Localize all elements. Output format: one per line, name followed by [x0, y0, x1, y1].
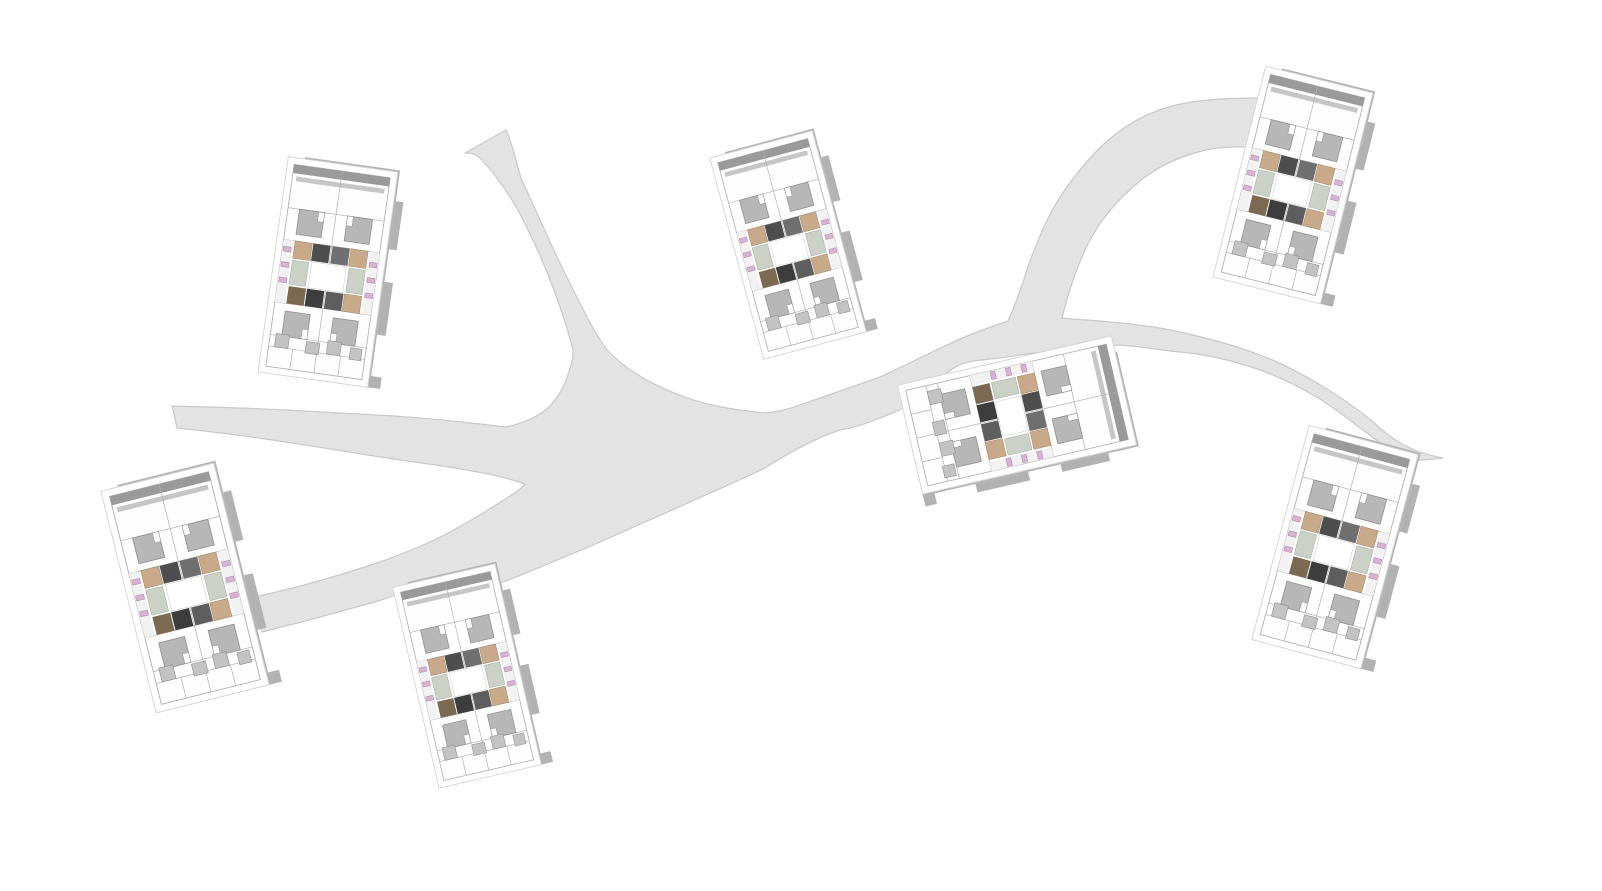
building-2: [709, 126, 877, 360]
building-7: [392, 559, 553, 788]
building-5: [1252, 423, 1431, 672]
building-1: [258, 155, 411, 389]
site-plan: [0, 0, 1602, 891]
building-6: [100, 458, 281, 713]
site-plan-canvas: [0, 0, 1602, 891]
